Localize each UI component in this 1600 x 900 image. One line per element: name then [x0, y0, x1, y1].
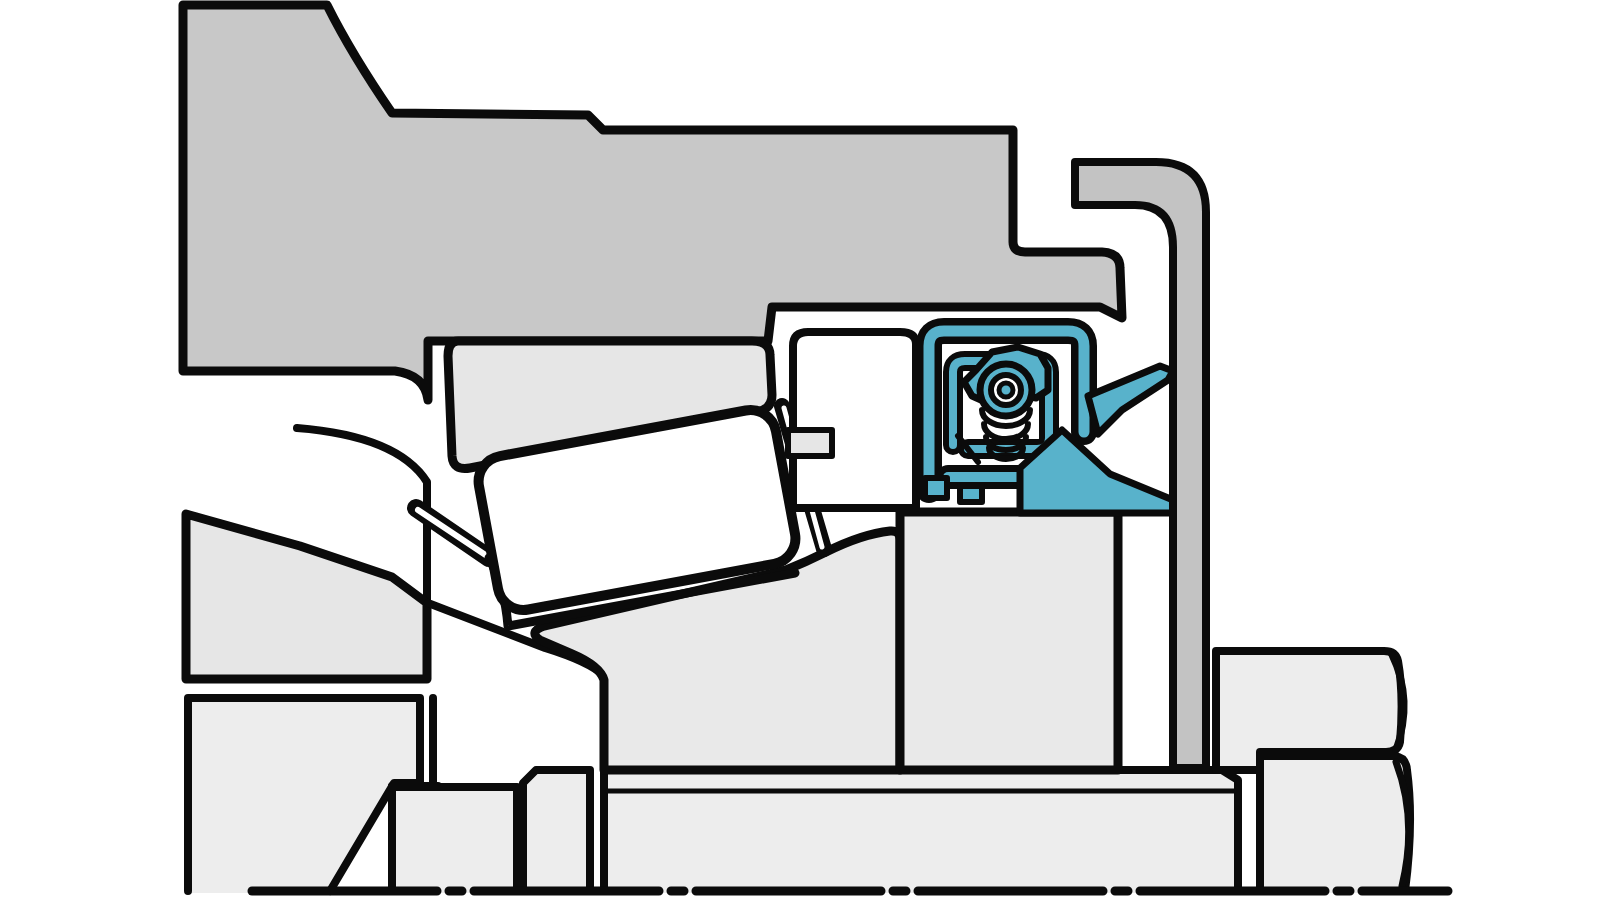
radial-shaft-seal [925, 331, 1178, 513]
seal-foot-left [925, 478, 947, 498]
locknut-lower-block-fill [1260, 756, 1410, 893]
end-cover-wedge [186, 514, 427, 679]
drawing-root [183, 5, 1448, 893]
seal-seat-collar [900, 512, 1118, 770]
counterface-sleeve [793, 332, 916, 508]
garter-spring-center [999, 383, 1013, 397]
diagram-canvas [0, 0, 1600, 900]
shaft-step-block-2-fill [523, 770, 590, 893]
bearing-seal-cross-section [0, 0, 1600, 900]
shaft-step-block-1-fill [392, 787, 517, 893]
slinger-lower-arm [1020, 430, 1178, 513]
shaft-sleeve-block-fill [604, 770, 1238, 893]
counterface-step [788, 430, 832, 456]
slinger-upper-arm [1088, 366, 1173, 434]
seal-foot-mid [960, 486, 982, 502]
